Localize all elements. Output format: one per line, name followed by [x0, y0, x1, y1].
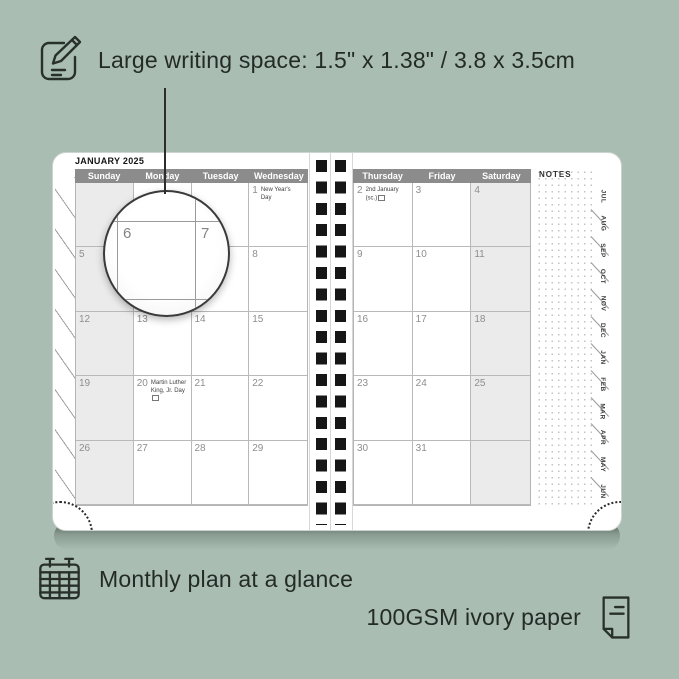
month-tab-label: DEC	[599, 323, 606, 338]
calendar-cell-11: 11	[471, 247, 530, 311]
month-tab-may: MAY	[594, 451, 611, 478]
magnifier-circle: 6 7	[103, 190, 230, 317]
day-number: 10	[416, 249, 427, 260]
calendar-cell-21: 21	[192, 376, 250, 440]
day-header-saturday: Saturday	[472, 169, 531, 183]
day-number: 4	[474, 185, 480, 196]
page-edge-hatching	[55, 177, 75, 509]
month-tab-dec: DEC	[594, 317, 611, 344]
left-day-header-bar: SundayMondayTuesdayWednesday	[75, 169, 308, 183]
day-header-tuesday: Tuesday	[192, 169, 250, 183]
day-header-thursday: Thursday	[353, 169, 412, 183]
day-number: 21	[195, 378, 206, 389]
day-header-sunday: Sunday	[75, 169, 133, 183]
day-number: 13	[137, 314, 148, 325]
calendar-cell-27: 27	[134, 441, 192, 505]
calendar-cell-23: 23	[354, 376, 413, 440]
day-number: 28	[195, 443, 206, 454]
calendar-cell-24: 24	[413, 376, 472, 440]
calendar-cell-3: 3	[413, 183, 472, 247]
calendar-cell-20: 20Martin Luther King, Jr. Day	[134, 376, 192, 440]
month-tab-oct: OCT	[594, 263, 611, 290]
day-number: 22	[252, 378, 263, 389]
calendar-cell-25: 25	[471, 376, 530, 440]
day-number: 3	[416, 185, 422, 196]
holiday-flag-icon	[378, 195, 385, 201]
annotation-writing-space: Large writing space: 1.5" x 1.38" / 3.8 …	[36, 34, 575, 86]
calendar-cell-8: 8	[249, 247, 307, 311]
day-number: 17	[416, 314, 427, 325]
magnified-day-7: 7	[201, 225, 209, 242]
calendar-cell-22: 22	[249, 376, 307, 440]
day-number: 25	[474, 378, 485, 389]
spiral-holes-left	[316, 160, 327, 525]
day-number: 30	[357, 443, 368, 454]
calendar-cell-13: 13	[134, 312, 192, 376]
spiral-holes-right	[335, 160, 346, 525]
day-header-wednesday: Wednesday	[250, 169, 308, 183]
month-tab-label: OCT	[599, 269, 606, 284]
annotation-connector-line	[164, 88, 166, 194]
month-tab-label: NOV	[599, 296, 606, 312]
calendar-cell-18: 18	[471, 312, 530, 376]
calendar-cell-29: 29	[249, 441, 307, 505]
magnified-grid-line	[117, 192, 118, 315]
calendar-cell-15: 15	[249, 312, 307, 376]
day-number: 2	[357, 185, 363, 196]
left-page-edge-line	[309, 153, 310, 530]
day-number: 14	[195, 314, 206, 325]
right-page-grid: 22nd January (sc.)3491011161718232425303…	[353, 183, 531, 506]
month-tab-mar: MAR	[594, 398, 611, 425]
day-number: 5	[79, 249, 85, 260]
day-number: 29	[252, 443, 263, 454]
day-number: 20	[137, 378, 148, 389]
day-number: 27	[137, 443, 148, 454]
calendar-cell-9: 9	[354, 247, 413, 311]
holiday-note: Martin Luther King, Jr. Day	[151, 378, 189, 403]
day-number: 8	[252, 249, 258, 260]
month-tab-label: SEP	[599, 243, 606, 258]
calendar-cell-empty	[471, 441, 530, 505]
day-number: 31	[416, 443, 427, 454]
day-number: 24	[416, 378, 427, 389]
day-number: 12	[79, 314, 90, 325]
notes-label: NOTES	[539, 170, 572, 179]
day-number: 18	[474, 314, 485, 325]
day-number: 19	[79, 378, 90, 389]
calendar-cell-16: 16	[354, 312, 413, 376]
month-tab-apr: APR	[594, 424, 611, 451]
calendar-cell-26: 26	[76, 441, 134, 505]
month-tab-jun: JUN	[594, 478, 611, 505]
month-tab-aug: AUG	[594, 210, 611, 237]
annotation-paper: 100GSM ivory paper	[366, 594, 635, 641]
holiday-note: New Year's Day	[261, 185, 299, 202]
calendar-cell-28: 28	[192, 441, 250, 505]
page-gap-line	[330, 153, 331, 530]
holiday-note: 2nd January (sc.)	[366, 185, 404, 203]
right-day-header-bar: ThursdayFridaySaturday	[353, 169, 531, 183]
month-tab-label: JAN	[599, 350, 606, 365]
spiral-binding	[309, 153, 353, 530]
month-tab-label: MAY	[599, 457, 606, 472]
month-tab-label: JUN	[599, 484, 606, 499]
month-title: JANUARY 2025	[75, 156, 144, 166]
day-number: 23	[357, 378, 368, 389]
month-tabs: JULAUGSEPOCTNOVDECJANFEBMARAPRMAYJUN	[594, 183, 611, 505]
month-tab-feb: FEB	[594, 371, 611, 398]
calendar-cell-1: 1New Year's Day	[249, 183, 307, 247]
calendar-grid-icon	[36, 556, 83, 602]
month-tab-jul: JUL	[594, 183, 611, 210]
calendar-cell-30: 30	[354, 441, 413, 505]
magnified-grid-line	[195, 192, 196, 315]
day-header-monday: Monday	[133, 169, 191, 183]
month-tab-label: MAR	[599, 403, 606, 419]
month-tab-label: JUL	[599, 190, 606, 204]
holiday-flag-icon	[152, 395, 159, 401]
calendar-cell-31: 31	[413, 441, 472, 505]
day-number: 16	[357, 314, 368, 325]
magnified-grid-line	[105, 299, 228, 300]
day-number: 26	[79, 443, 90, 454]
notes-dot-grid	[536, 169, 593, 506]
monthly-plan-text: Monthly plan at a glance	[99, 566, 353, 593]
calendar-cell-10: 10	[413, 247, 472, 311]
magnified-day-6: 6	[123, 225, 131, 242]
note-pencil-icon	[36, 34, 82, 86]
writing-space-text: Large writing space: 1.5" x 1.38" / 3.8 …	[98, 47, 575, 74]
calendar-cell-12: 12	[76, 312, 134, 376]
month-tab-label: APR	[599, 430, 606, 445]
calendar-cell-2: 22nd January (sc.)	[354, 183, 413, 247]
calendar-cell-17: 17	[413, 312, 472, 376]
month-tab-jan: JAN	[594, 344, 611, 371]
month-tab-label: AUG	[599, 215, 606, 231]
magnified-grid-line	[105, 221, 228, 222]
annotation-monthly-plan: Monthly plan at a glance	[36, 556, 353, 602]
calendar-cell-14: 14	[192, 312, 250, 376]
month-tab-sep: SEP	[594, 237, 611, 264]
day-number: 1	[252, 185, 258, 196]
day-number: 11	[474, 249, 484, 260]
month-tab-label: FEB	[599, 377, 606, 392]
day-number: 9	[357, 249, 363, 260]
day-header-friday: Friday	[412, 169, 471, 183]
calendar-cell-4: 4	[471, 183, 530, 247]
month-tab-nov: NOV	[594, 290, 611, 317]
calendar-cell-19: 19	[76, 376, 134, 440]
day-number: 15	[252, 314, 263, 325]
paper-text: 100GSM ivory paper	[366, 604, 581, 631]
paper-sheet-icon	[597, 594, 635, 641]
